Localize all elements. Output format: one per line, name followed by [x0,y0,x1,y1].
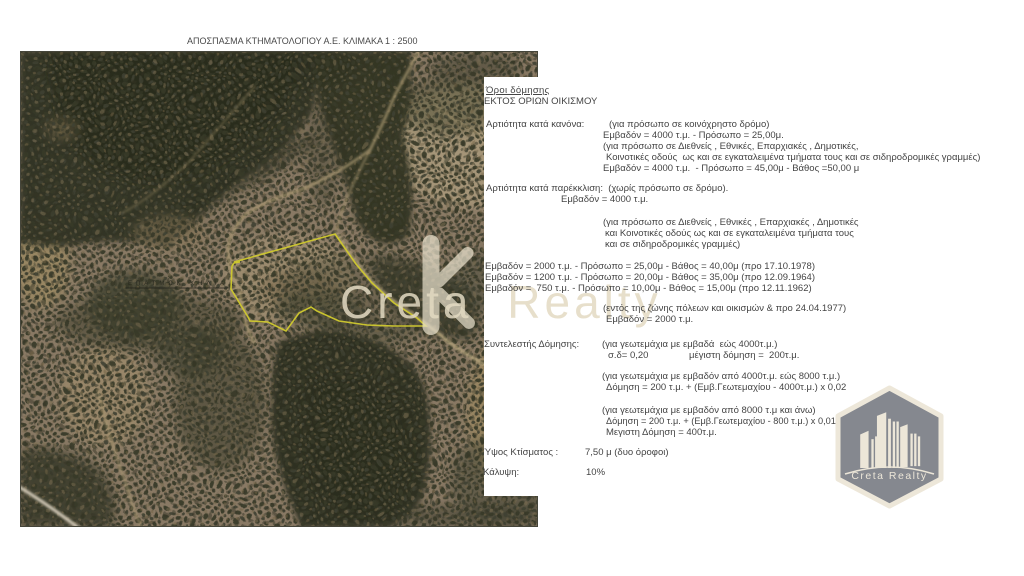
svg-text:Creta Realty: Creta Realty [851,470,927,482]
